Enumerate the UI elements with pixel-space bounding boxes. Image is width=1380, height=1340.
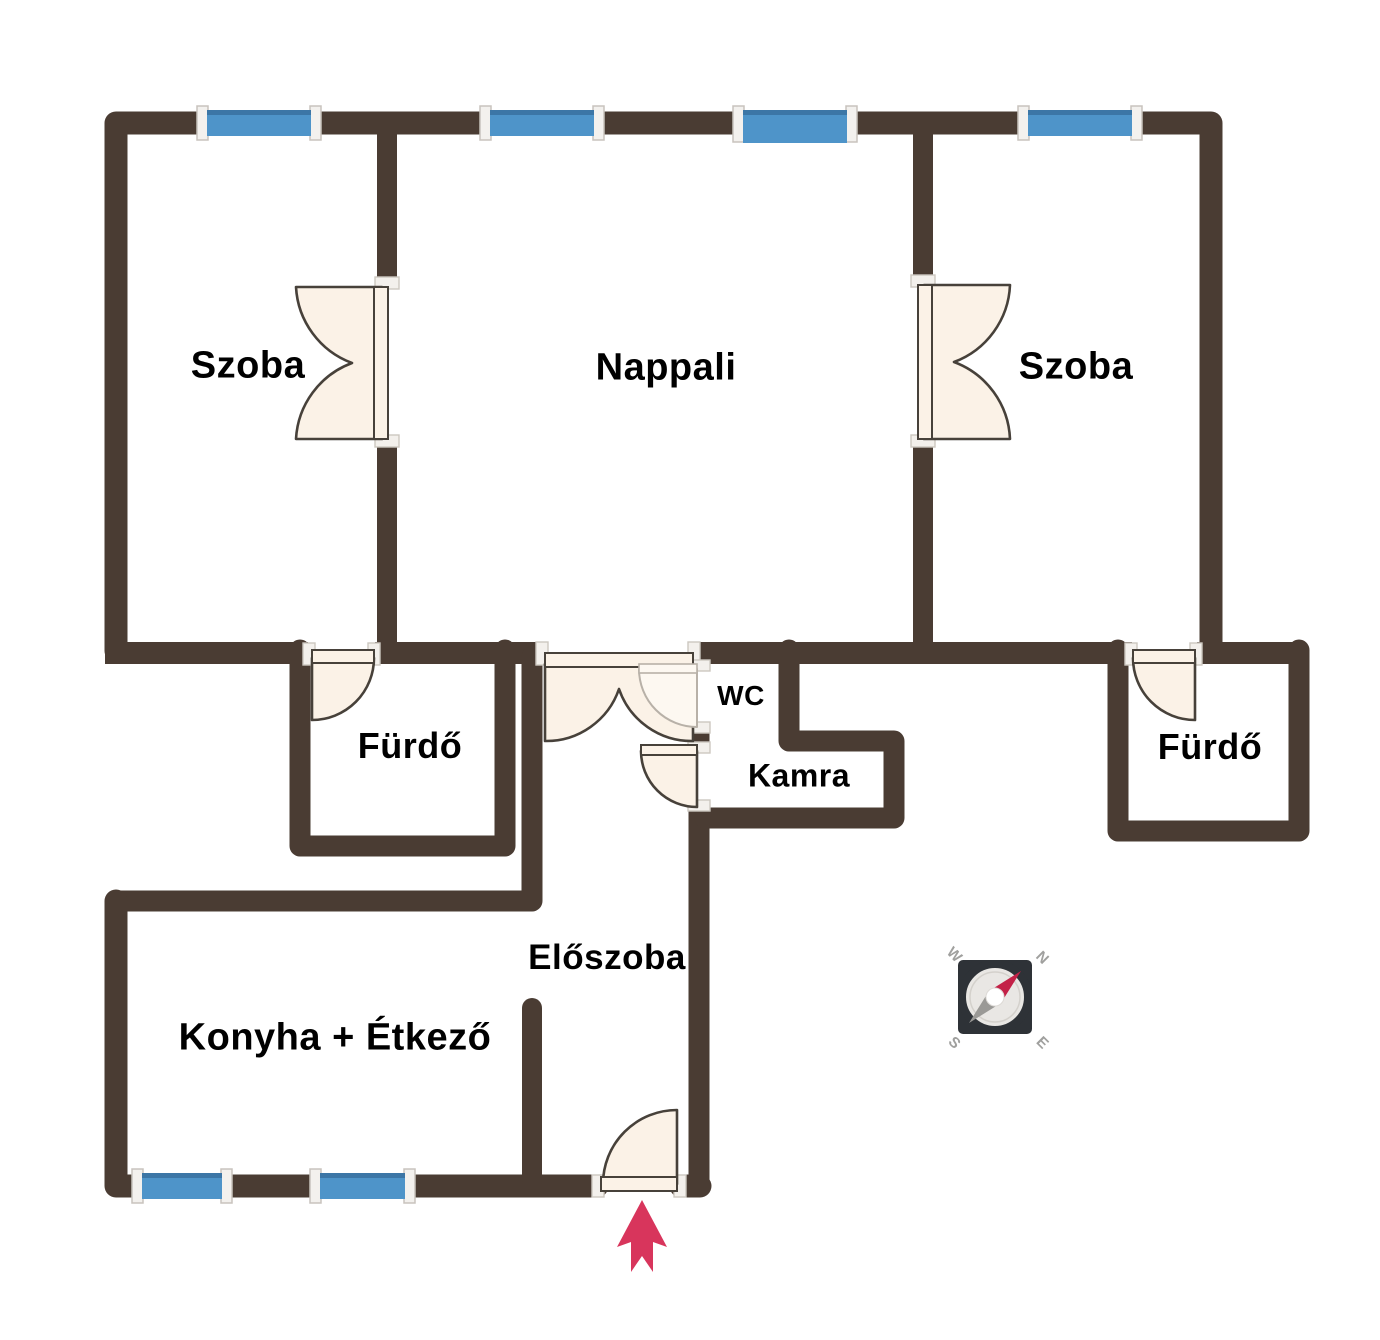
door-szoba-left (296, 287, 382, 439)
door-leaf (374, 287, 388, 439)
room-label-wc: WC (717, 680, 765, 712)
compass-letter-s: S (945, 1033, 964, 1052)
floor-plan-canvas: W N S E (0, 0, 1380, 1340)
compass-letter-n: N (1032, 948, 1052, 968)
door-leaf (918, 285, 932, 439)
door-leaf (641, 745, 697, 755)
compass-letter-e: E (1033, 1033, 1052, 1052)
door-leaf (312, 650, 374, 663)
door-furdo-left (312, 658, 374, 720)
room-label-konyha: Konyha + Étkező (179, 1017, 492, 1060)
room-label-eloszoba: Előszoba (528, 938, 686, 978)
room-label-nappali: Nappali (596, 347, 737, 390)
window (480, 106, 604, 140)
door-kamra (641, 751, 697, 807)
floor-plan: W N S E Szoba Nappali Szoba Fürdő WC Kam… (0, 0, 1380, 1340)
window (1018, 106, 1142, 140)
room-label-szoba-left: Szoba (191, 345, 305, 388)
window (310, 1169, 415, 1203)
room-label-kamra: Kamra (748, 758, 850, 795)
compass-icon: W N S E (943, 944, 1052, 1053)
door-leaf (1133, 650, 1195, 663)
door-entrance (603, 1110, 677, 1184)
entrance-arrow-icon (617, 1200, 667, 1272)
door-leaf (601, 1177, 677, 1191)
room-label-szoba-right: Szoba (1019, 346, 1133, 389)
window (132, 1169, 232, 1203)
window (733, 106, 857, 143)
door-szoba-right (924, 285, 1010, 439)
door-furdo-right (1133, 658, 1195, 720)
door-leaf (639, 664, 697, 673)
room-label-furdo-right: Fürdő (1158, 726, 1262, 768)
room-label-furdo-left: Fürdő (358, 725, 462, 767)
window (197, 106, 321, 140)
